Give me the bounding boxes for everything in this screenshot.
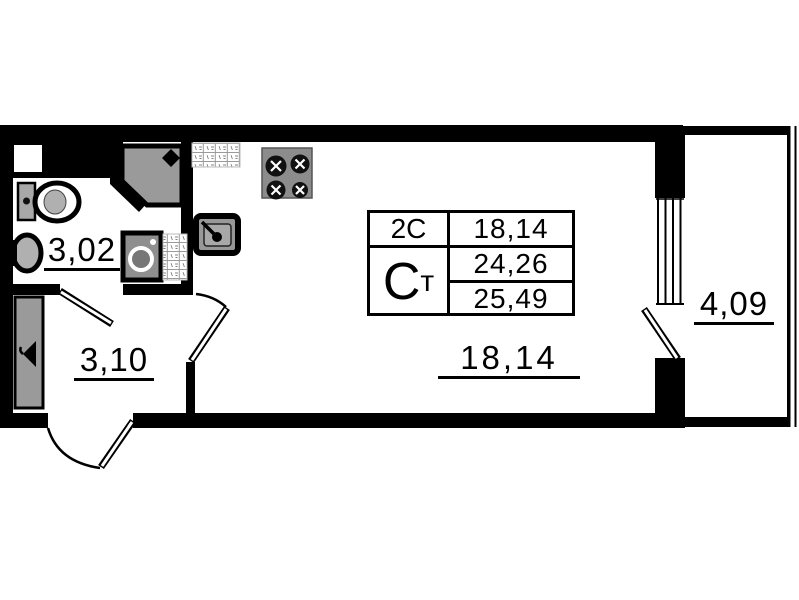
entrance-door-swing-arc: [48, 428, 100, 468]
bathroom-door-icon: [60, 291, 112, 324]
floor-plan: 3,02 3,10 18,14 4,09 2С 18,14 Ст 24,26 2…: [0, 0, 799, 600]
wall-bottom-main: [133, 413, 685, 428]
shaft-niche: [14, 145, 42, 172]
type-code-cell: 2С: [370, 213, 450, 245]
wall-bathroom-bottom-left: [0, 284, 60, 295]
studio-type-cell: Ст: [370, 248, 450, 315]
wall-balcony-pier-top: [655, 135, 685, 198]
total-area-cell: 25,49: [450, 283, 572, 315]
living-area-label: 18,14: [438, 336, 580, 379]
washbasin-icon: [13, 235, 41, 271]
balcony-glazing-inner-line: [795, 126, 797, 427]
bathroom-area-label: 3,02: [44, 230, 120, 271]
wall-balcony-top: [683, 126, 790, 135]
wall-top: [0, 125, 683, 142]
wall-bottom-left: [0, 413, 48, 428]
info-table-rows-2-3: Ст 24,26 25,49: [370, 248, 572, 315]
wall-hall-divider: [186, 362, 195, 418]
balcony-window-icon: [656, 198, 684, 305]
studio-letter-big: С: [383, 256, 421, 308]
area-no-balcony-cell: 24,26: [450, 248, 572, 283]
balcony-area-label: 4,09: [694, 285, 774, 325]
washing-machine-icon: [123, 233, 161, 280]
hall-door-icon: [191, 294, 227, 361]
hallway-area-label: 3,10: [74, 340, 154, 381]
apartment-info-table: 2С 18,14 Ст 24,26 25,49: [367, 210, 575, 316]
kitchen-sink-icon: [196, 216, 238, 253]
balcony-door-icon: [644, 309, 678, 359]
towel-rail-hatch-icon: [163, 234, 187, 280]
wardrobe-icon: [15, 297, 43, 408]
area-values-column: 24,26 25,49: [450, 248, 572, 315]
toilet-icon: [18, 183, 79, 221]
wall-balcony-pier-bottom: [655, 358, 685, 428]
info-table-row-1: 2С 18,14: [370, 213, 572, 248]
wall-left: [0, 125, 13, 428]
wall-bathroom-bottom-right: [123, 284, 193, 295]
studio-letter-small: т: [420, 267, 434, 297]
entrance-door-icon: [48, 421, 133, 468]
balcony-glazing-outer-line: [787, 126, 791, 427]
wall-balcony-bottom: [685, 417, 788, 427]
stove-icon: [262, 148, 312, 200]
kitchen-counter-hatch-icon: [192, 143, 240, 167]
living-area-cell: 18,14: [450, 213, 572, 245]
